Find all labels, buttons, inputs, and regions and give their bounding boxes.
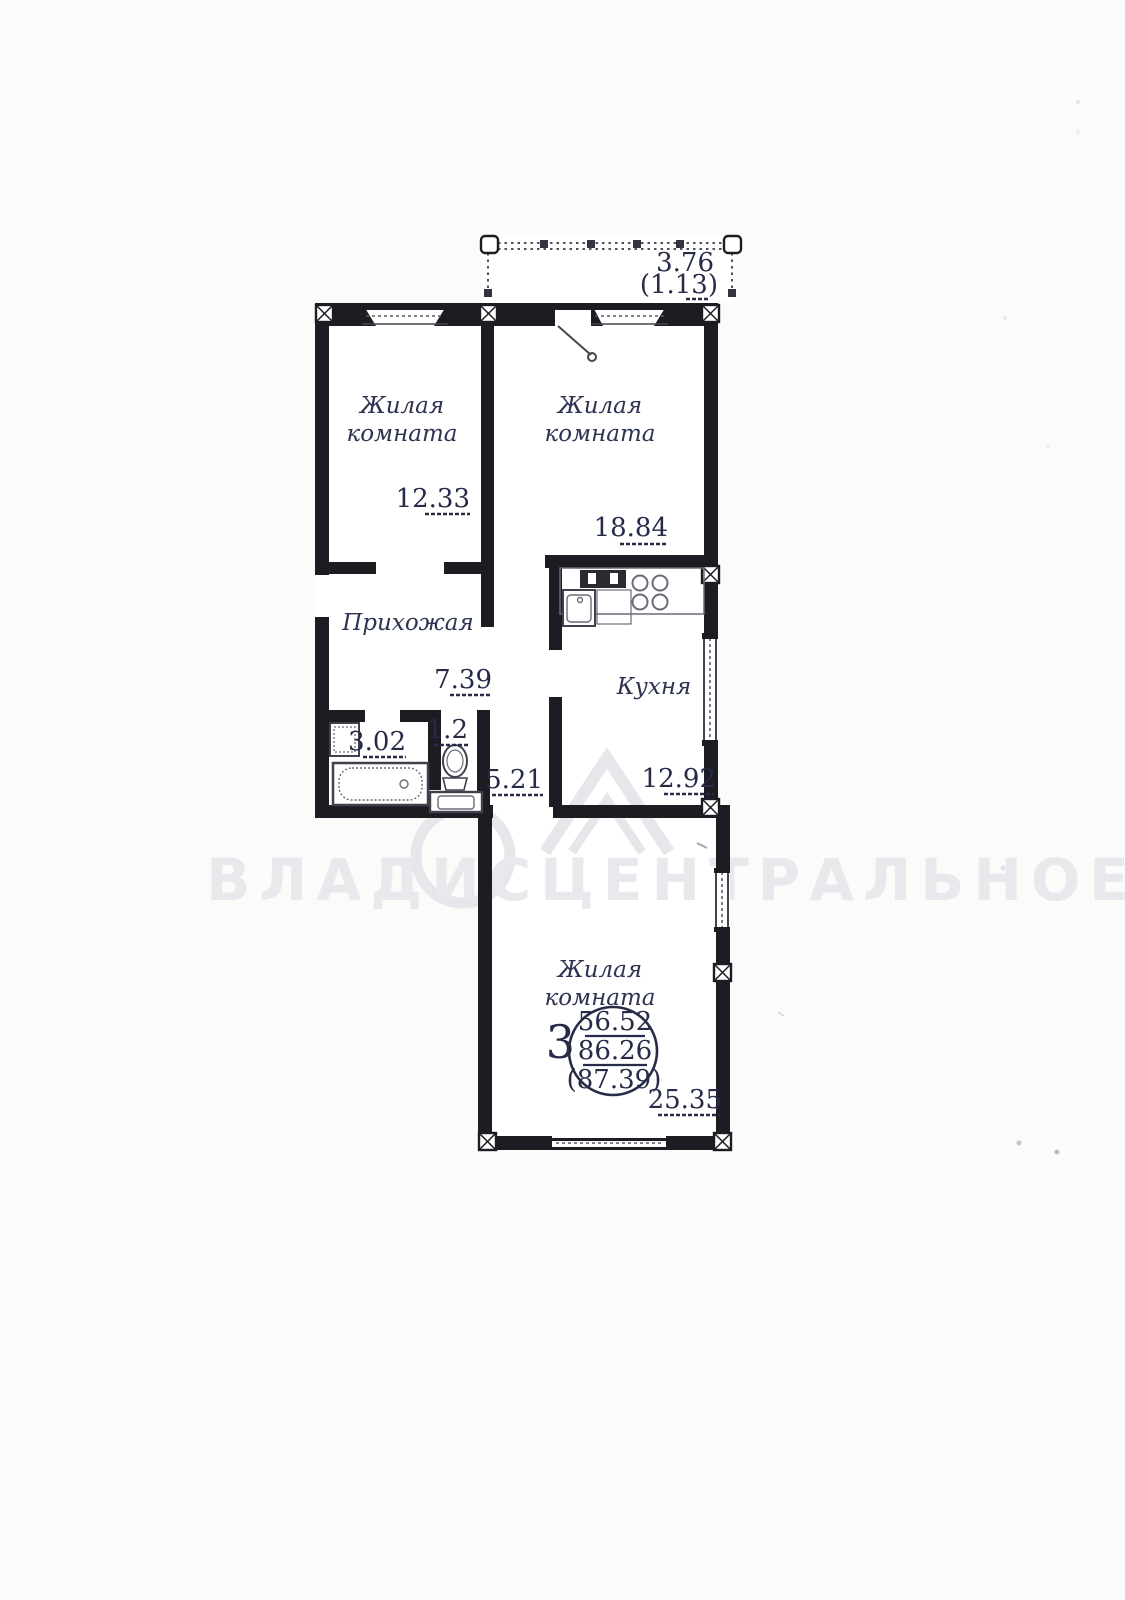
- joint-marker: [714, 1133, 731, 1150]
- living3-name-line1: Жилая: [556, 957, 642, 983]
- kitchen-vent-box: [580, 570, 626, 588]
- washing-machine: [430, 792, 482, 812]
- label-bath: 3.02: [348, 727, 406, 757]
- joint-marker: [702, 799, 719, 816]
- total-area-with-balcony: (87.39): [567, 1065, 662, 1095]
- living1-name-line1: Жилая: [358, 393, 444, 419]
- floor-plan-canvas: ВЛАДИСЦЕНТРАЛЬНОЕ 3.76 (1.13): [0, 0, 1125, 1600]
- balcony-post-left: [481, 236, 498, 253]
- window-living3-right: [714, 868, 730, 932]
- bathtub: [333, 763, 428, 805]
- living2-name-line2: комната: [544, 421, 655, 447]
- living2-area: 18.84: [594, 513, 668, 543]
- watermark-text: ВЛАДИСЦЕНТРАЛЬНОЕ: [206, 846, 1125, 914]
- balcony-post-right: [724, 236, 741, 253]
- kitchen-area: 12.92: [642, 764, 716, 794]
- kitchen-name: Кухня: [616, 674, 692, 700]
- hall-area: 7.39: [434, 665, 492, 695]
- joint-marker: [316, 305, 333, 322]
- living-area-total: 56.52: [578, 1007, 652, 1037]
- balcony-area-dimension: (1.13): [640, 270, 718, 300]
- window-kitchen: [702, 633, 718, 746]
- living1-name-line2: комната: [346, 421, 457, 447]
- joint-marker: [480, 305, 497, 322]
- kitchen-sink: [563, 590, 595, 626]
- joint-marker: [479, 1133, 496, 1150]
- label-wc: 1.2: [427, 715, 469, 745]
- toilet: [443, 745, 467, 790]
- label-corridor: 5.21: [485, 765, 543, 795]
- scanned-floor-plan-page: { "document_type": "apartment floor plan…: [0, 0, 1125, 1600]
- hall-name: Прихожая: [341, 610, 474, 636]
- wc-area: 1.2: [427, 715, 468, 745]
- joint-marker: [702, 305, 719, 322]
- corridor-area: 5.21: [485, 765, 543, 795]
- bath-area: 3.02: [348, 727, 406, 757]
- living1-area: 12.33: [396, 484, 470, 514]
- living2-name-line1: Жилая: [556, 393, 642, 419]
- floor-area-total: 86.26: [578, 1036, 652, 1066]
- joint-marker: [714, 964, 731, 981]
